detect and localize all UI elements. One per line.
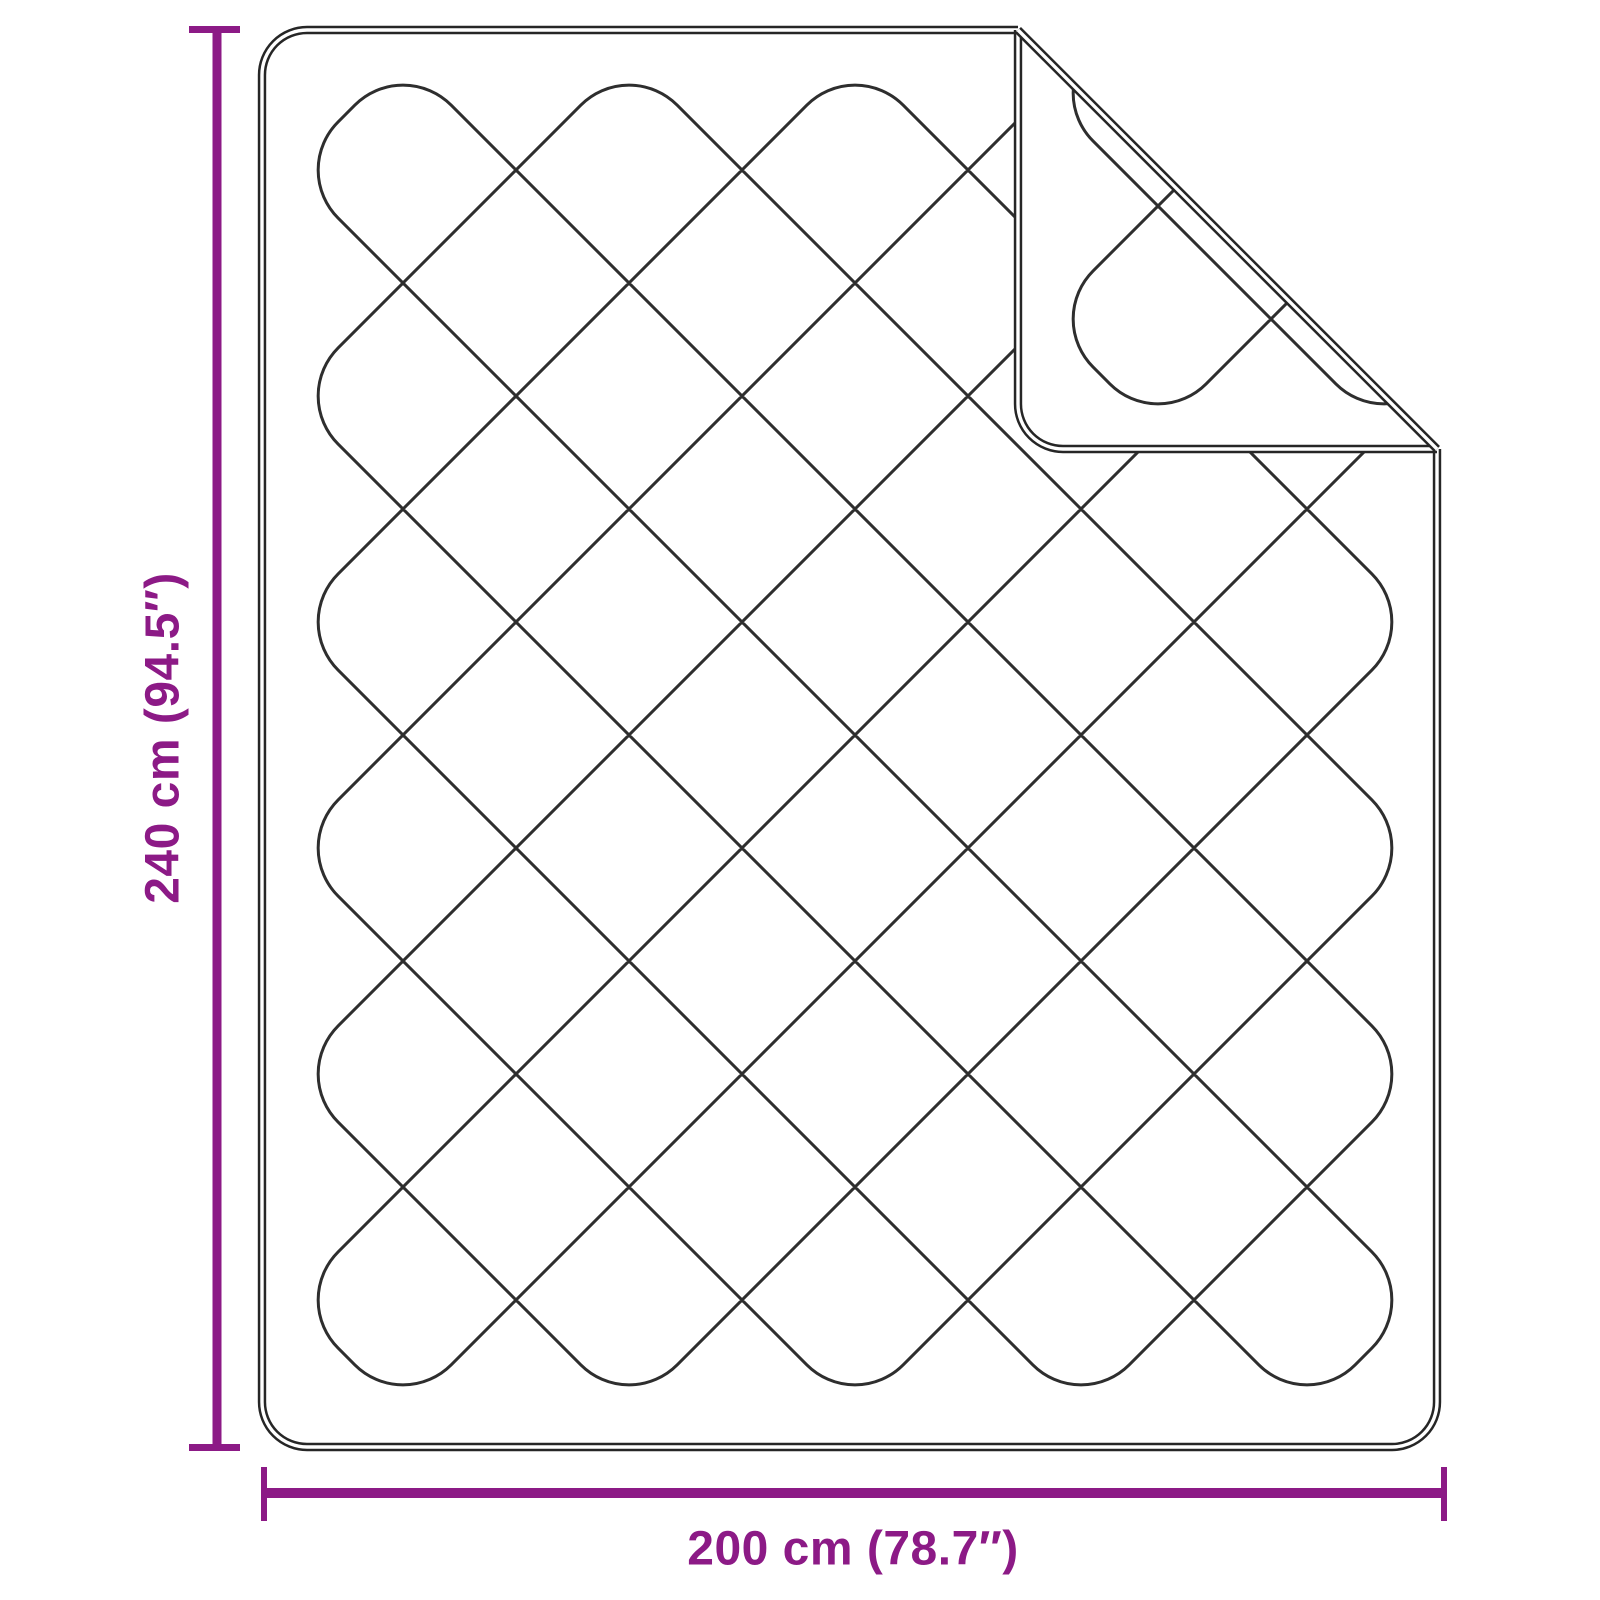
dimension-bar (1441, 1467, 1447, 1521)
dimension-bar (189, 26, 240, 33)
width-dimension-line (261, 1467, 1447, 1521)
width-dimension-label: 200 cm (78.7″) (687, 1522, 1019, 1577)
height-dimension-line (189, 26, 240, 1451)
dimension-bar (264, 1488, 1445, 1498)
diagram-canvas (0, 0, 1600, 1600)
dimension-bar (189, 1444, 240, 1451)
dimension-bar (213, 28, 222, 1449)
blanket-dimension-diagram: 240 cm (94.5″) 200 cm (78.7″) (0, 0, 1600, 1600)
fold-crease-line (1018, 30, 1437, 449)
dimension-bar (261, 1467, 267, 1521)
height-dimension-label: 240 cm (94.5″) (136, 572, 191, 904)
